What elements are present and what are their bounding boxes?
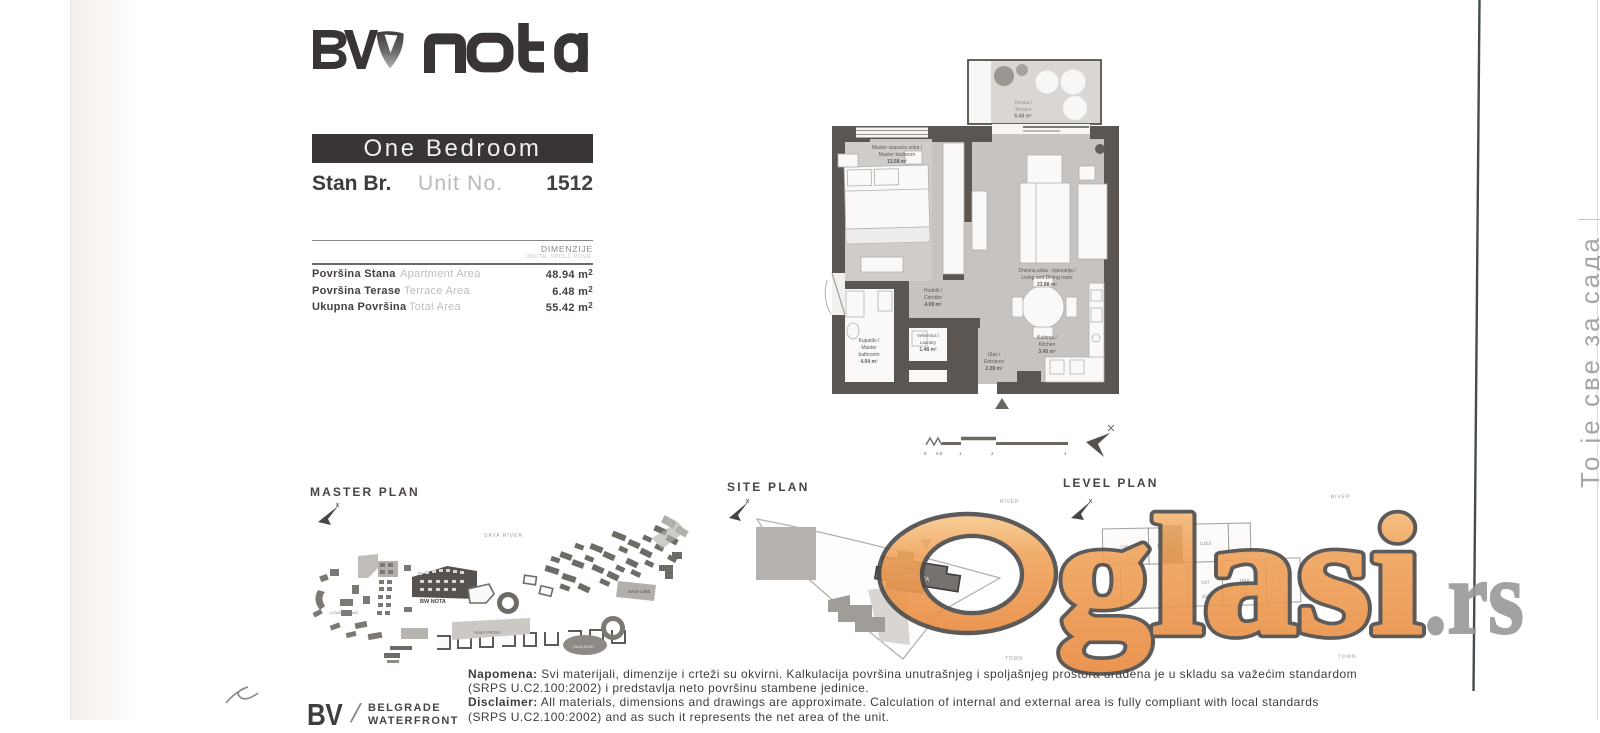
- svg-text:Entrance: Entrance: [984, 359, 1004, 365]
- svg-text:.rs: .rs: [1424, 539, 1524, 656]
- svg-text:13.58 m²: 13.58 m²: [887, 159, 907, 165]
- svg-text:Master bedroom: Master bedroom: [879, 152, 915, 158]
- svg-text:3.45 m²: 3.45 m²: [1038, 349, 1056, 355]
- svg-text:Dnevna soba - trpezarija /: Dnevna soba - trpezarija /: [1018, 268, 1076, 274]
- svg-text:glasi: glasi: [1057, 482, 1423, 670]
- svg-text:Kuhinja /: Kuhinja /: [1037, 335, 1057, 341]
- svg-text:SAVA RIVER: SAVA RIVER: [484, 533, 523, 539]
- svg-text:6.48 m²: 6.48 m²: [1014, 114, 1032, 120]
- svg-text:LOWER TOWN: LOWER TOWN: [330, 610, 358, 615]
- svg-text:Ulaz /: Ulaz /: [988, 352, 1001, 358]
- svg-text:BW NOTA: BW NOTA: [420, 599, 446, 605]
- svg-text:Terrace: Terrace: [1015, 107, 1032, 113]
- svg-text:1.48 m²: 1.48 m²: [919, 347, 937, 353]
- svg-text:SAVA PROM.: SAVA PROM.: [474, 630, 501, 635]
- svg-text:4.04 m²: 4.04 m²: [860, 359, 878, 365]
- svg-text:Laundry: Laundry: [920, 340, 937, 345]
- svg-text:Kupatilo /: Kupatilo /: [859, 338, 880, 344]
- svg-text:Master spavaća soba /: Master spavaća soba /: [872, 145, 923, 151]
- svg-text:MASTER PLAN: MASTER PLAN: [310, 485, 420, 499]
- svg-text:Corridor: Corridor: [924, 295, 942, 301]
- svg-text:SAVA LINE: SAVA LINE: [628, 589, 650, 594]
- svg-text:bathroom: bathroom: [858, 352, 879, 358]
- svg-text:Vešernica /: Vešernica /: [917, 333, 940, 338]
- svg-text:2.28 m²: 2.28 m²: [985, 366, 1003, 372]
- svg-text:SAVA BLVD: SAVA BLVD: [573, 644, 594, 649]
- svg-text:23.88 m²: 23.88 m²: [1037, 282, 1057, 288]
- svg-text:Terasa /: Terasa /: [1014, 100, 1032, 106]
- svg-text:Living and Dining room: Living and Dining room: [1021, 275, 1072, 281]
- svg-text:Master: Master: [861, 345, 877, 351]
- svg-text:Hodnik /: Hodnik /: [924, 288, 943, 294]
- svg-text:4.09 m²: 4.09 m²: [924, 302, 942, 308]
- svg-text:Kitchen: Kitchen: [1039, 342, 1056, 348]
- svg-text:SITE PLAN: SITE PLAN: [727, 480, 809, 494]
